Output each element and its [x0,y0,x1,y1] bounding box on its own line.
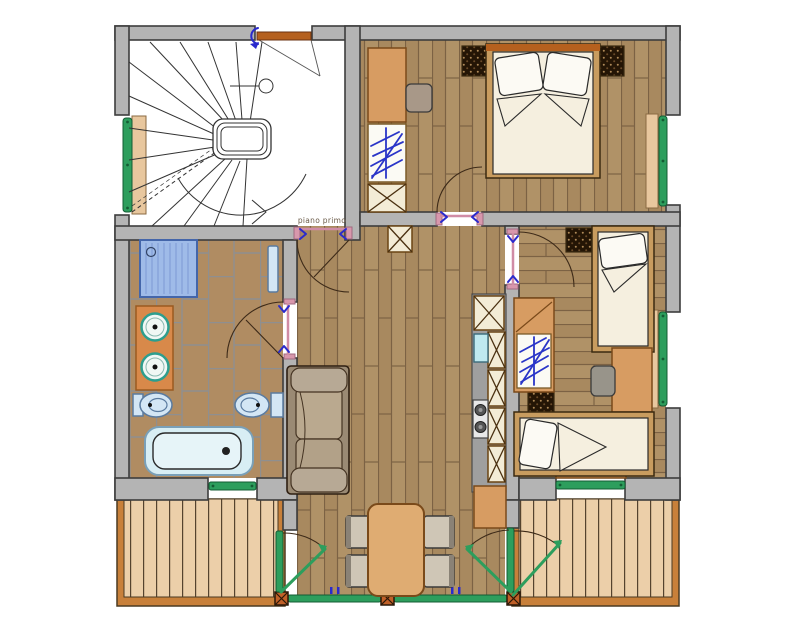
wall-stub-balcony-left [283,500,297,530]
kitchen-sink [474,334,488,362]
chair [591,366,615,396]
desk [612,348,652,412]
dining-table [368,504,424,596]
wall-top-left [115,26,255,40]
cabinet [488,332,505,368]
bathtub [145,427,253,475]
deck-planks [124,499,278,597]
cabinet [488,446,505,482]
wall-stairhall-south [115,226,297,240]
wall-top-right [312,26,680,40]
dining-chair [424,555,454,587]
cabinet [488,370,505,406]
shower [140,240,197,297]
bidet [133,393,172,417]
chair [406,84,432,112]
post-left [275,592,288,605]
entry-door-leaf [257,32,311,40]
window-bathroom-south [209,482,256,490]
single-bed-vertical [592,226,654,352]
towel-rail [268,246,278,292]
dresser [368,48,406,122]
sofa [287,366,349,494]
column [388,226,412,252]
window-stairhall-left [123,116,146,214]
radiator [599,46,624,76]
floor-plan-drawing [0,0,791,632]
living-room-furniture [287,366,349,494]
wall-bedroom1-south-right [482,212,680,226]
wall-bath-upper [283,240,297,302]
radiator [566,228,592,252]
wall-left-lower [115,215,129,500]
stove [473,400,488,438]
cabinet [488,408,505,444]
cabinet [368,184,406,212]
wall-stub-balcony-right [505,500,519,528]
double-bed [486,44,600,178]
washbasin-counter [136,306,173,390]
wall-bedroom1-south-left [360,212,437,226]
balcony-left [117,499,285,606]
wall-stairhall-bedroom [345,26,360,240]
base-cabinet [474,486,506,528]
cabinet [474,296,504,330]
single-bed-horizontal [514,412,654,476]
wardrobe [368,124,406,182]
floor-plan: piano primo [0,0,791,632]
wall-bedroom2-south-right [625,478,680,500]
dining-chair [424,516,454,548]
kitchenette [472,294,506,528]
wall-bath-south-left [115,478,208,500]
wall-left-upper [115,26,129,115]
wall-bedroom2-south-left [519,478,556,500]
wall-right-upper [666,26,680,115]
radiator [462,46,487,76]
window-bedroom1-right [646,114,667,208]
floor-label: piano primo [290,216,354,225]
glazing-left [288,595,381,602]
wardrobe [514,298,554,392]
deck-planks [519,499,672,597]
balcony-right [512,499,679,606]
toilet [235,393,283,417]
